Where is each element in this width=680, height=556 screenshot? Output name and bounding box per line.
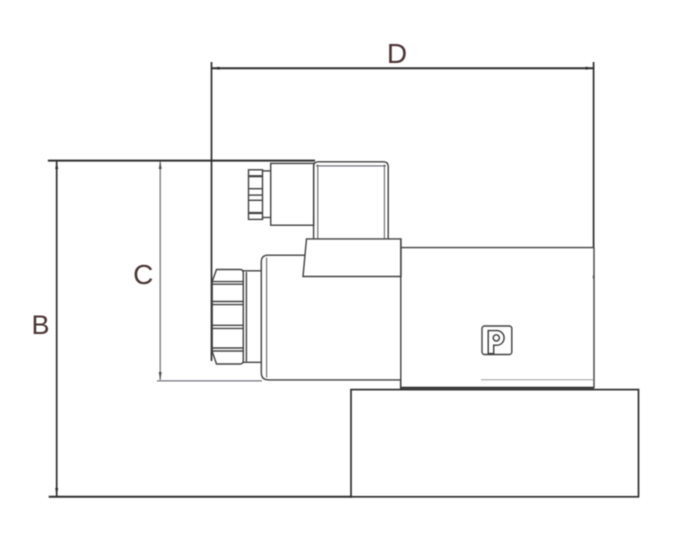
svg-text:D: D xyxy=(387,38,407,69)
svg-text:C: C xyxy=(133,259,153,290)
svg-text:B: B xyxy=(31,310,49,340)
